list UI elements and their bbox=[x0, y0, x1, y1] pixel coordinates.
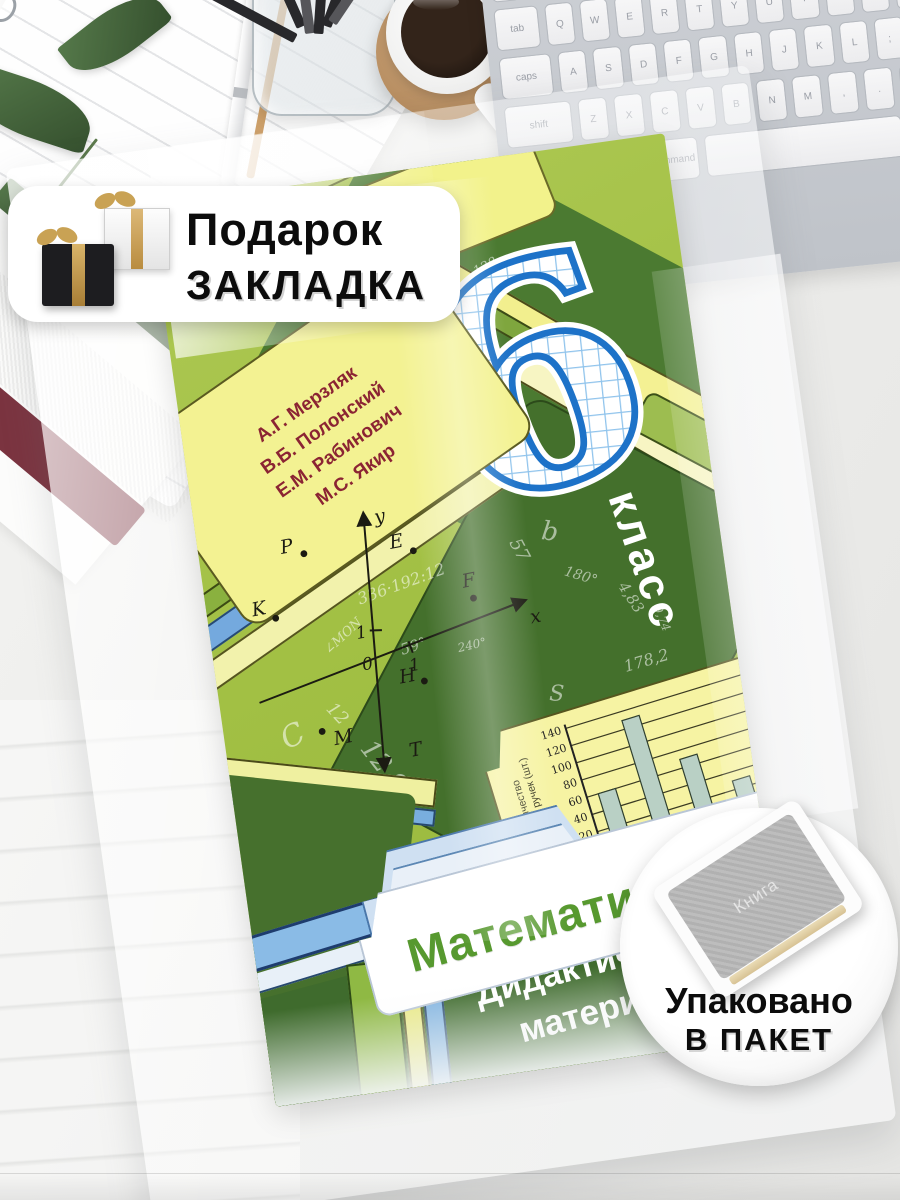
keyboard-key: U bbox=[753, 0, 785, 24]
keyboard-key: ; bbox=[873, 16, 900, 61]
keyboard-key: Q bbox=[544, 2, 576, 47]
keyboard-key: ~ bbox=[488, 0, 520, 3]
y-unit-label: 1 bbox=[354, 622, 368, 644]
svg-text:120: 120 bbox=[544, 741, 568, 760]
plane-point-label: E bbox=[386, 530, 405, 554]
plane-point-label: P bbox=[277, 535, 296, 559]
svg-text:100: 100 bbox=[550, 759, 574, 778]
plane-point-label: M bbox=[331, 725, 356, 751]
packaging-badge-line2: В ПАКЕТ bbox=[620, 1022, 898, 1058]
plane-point-label: F bbox=[459, 569, 478, 593]
svg-text:80: 80 bbox=[562, 776, 579, 793]
black-gift-box bbox=[42, 244, 114, 306]
keyboard-key: tab bbox=[493, 5, 541, 51]
svg-text:140: 140 bbox=[539, 724, 563, 743]
keyboard-key: . bbox=[863, 66, 896, 111]
keyboard-key: , bbox=[827, 70, 860, 115]
keyboard-key: N bbox=[756, 78, 789, 123]
keyboard-key: I bbox=[788, 0, 820, 21]
svg-text:60: 60 bbox=[567, 793, 584, 810]
plane-point bbox=[318, 727, 326, 735]
keyboard-key: J bbox=[768, 27, 801, 72]
plane-point-label: T bbox=[407, 738, 425, 762]
svg-text:40: 40 bbox=[572, 810, 589, 827]
math-symbol: 178,2 bbox=[621, 645, 670, 676]
plane-point bbox=[272, 614, 280, 622]
gift-badge-line1: Подарок bbox=[186, 204, 426, 256]
keyboard-key: K bbox=[803, 24, 836, 69]
keyboard-key: M bbox=[791, 74, 824, 119]
wrapped-book-label: Книга bbox=[730, 875, 782, 919]
plane-point-label: K bbox=[249, 597, 270, 622]
math-symbol: 4,83 bbox=[614, 578, 647, 616]
packaging-badge: Книга Упаковано В ПАКЕТ bbox=[620, 808, 898, 1086]
plane-point bbox=[409, 547, 417, 555]
keyboard-key: O bbox=[823, 0, 855, 17]
keyboard-key: L bbox=[838, 20, 871, 65]
keyboard-key: Y bbox=[718, 0, 750, 28]
math-symbol: 9,74 bbox=[650, 603, 673, 633]
plane-point bbox=[420, 677, 428, 685]
keyboard-key: [ bbox=[893, 0, 900, 10]
pencil-jar bbox=[252, 0, 396, 116]
gift-bow bbox=[54, 224, 80, 246]
keyboard-key: E bbox=[614, 0, 646, 39]
keyboard-key: T bbox=[683, 0, 715, 32]
gift-bow bbox=[112, 188, 138, 210]
product-photo: ~1234567890-=deletetabQWERTYUIOP[]\capsA… bbox=[0, 0, 900, 1200]
desk-edge bbox=[0, 1173, 900, 1200]
plane-point bbox=[300, 550, 308, 558]
origin-label: 0 bbox=[360, 654, 375, 676]
keyboard-key: P bbox=[858, 0, 890, 13]
plane-point bbox=[470, 594, 478, 602]
gift-badge-line2: ЗАКЛАДКА bbox=[186, 262, 426, 309]
y-axis-label: y bbox=[371, 505, 387, 529]
x-axis-label: x bbox=[528, 605, 543, 629]
math-symbol: 180° bbox=[562, 563, 599, 588]
gift-badge: Подарок ЗАКЛАДКА bbox=[8, 186, 460, 322]
packaging-badge-line1: Упаковано bbox=[620, 980, 898, 1022]
keyboard-key: W bbox=[579, 0, 611, 43]
keyboard-key: R bbox=[648, 0, 680, 35]
